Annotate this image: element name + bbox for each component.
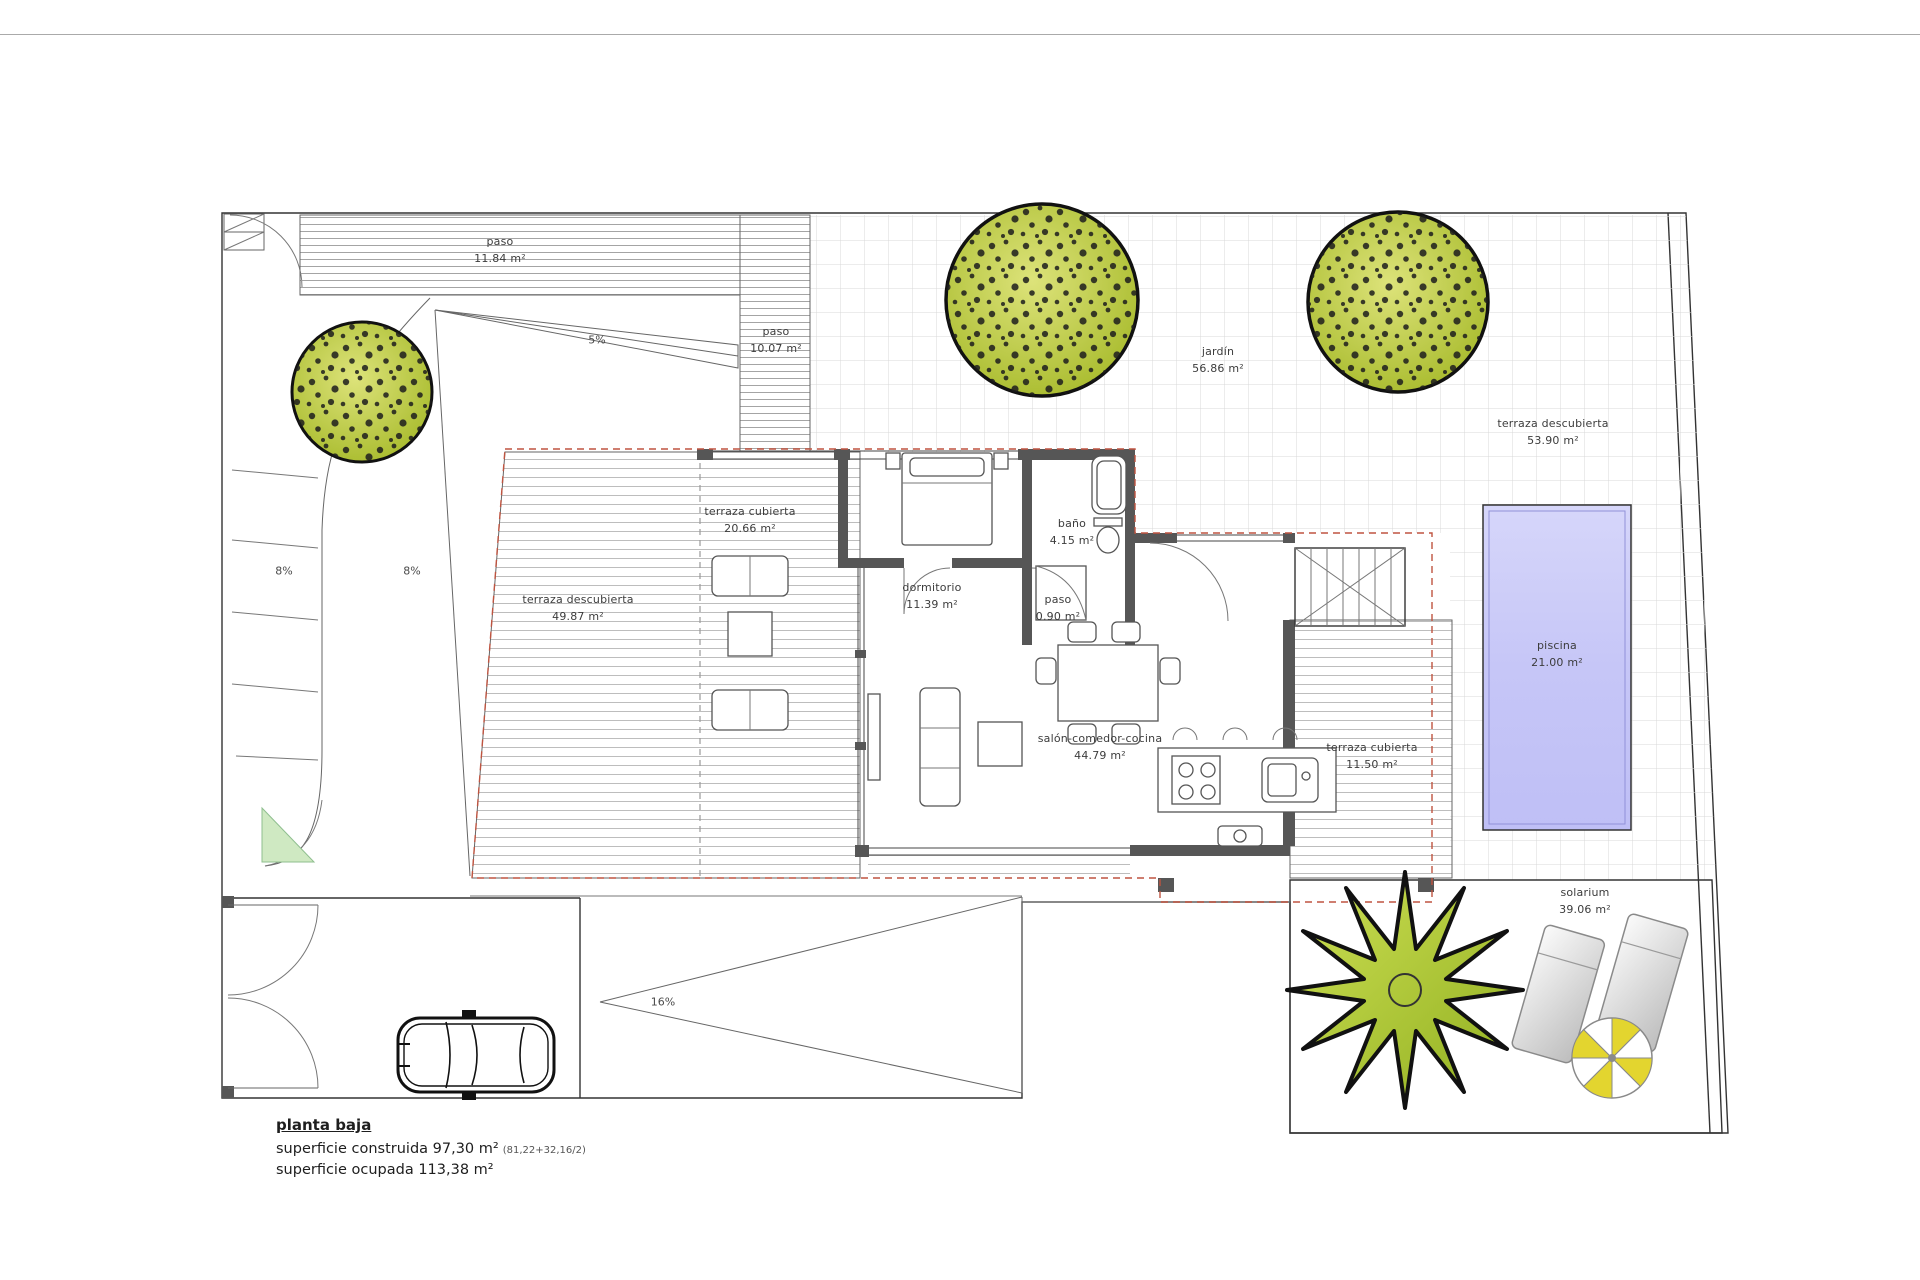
plan-title: planta baja xyxy=(276,1116,586,1134)
room-label-piscina: piscina21.00 m² xyxy=(1531,637,1583,671)
room-label-terraza-cubierta-oeste: terraza cubierta20.66 m² xyxy=(704,503,795,537)
room-label-dormitorio: dormitorio11.39 m² xyxy=(902,579,961,613)
room-label-terraza-descubierta-oeste: terraza descubierta49.87 m² xyxy=(522,591,633,625)
built-area-note: (81,22+32,16/2) xyxy=(503,1145,586,1156)
room-label-bano: baño4.15 m² xyxy=(1050,515,1095,549)
slope-label-8a: 8% xyxy=(275,565,292,578)
occupied-area-row: superficie ocupada 113,38 m² xyxy=(276,1162,586,1178)
room-label-solarium: solarium39.06 m² xyxy=(1559,884,1611,918)
floorplan-linework xyxy=(0,0,1920,1280)
garage-doors xyxy=(222,896,318,1098)
stairs xyxy=(1295,548,1405,626)
room-label-jardin: jardín56.86 m² xyxy=(1192,343,1244,377)
grass-patch xyxy=(262,808,314,862)
palm-icon xyxy=(1287,872,1523,1108)
room-label-terraza-descubierta-este: terraza descubierta53.90 m² xyxy=(1497,415,1608,449)
room-label-salon-comedor-cocina: salón-comedor-cocina44.79 m² xyxy=(1038,730,1163,764)
tree-icon xyxy=(1308,212,1488,392)
slope-label-8b: 8% xyxy=(403,565,420,578)
built-area-row: superficie construida 97,30 m²(81,22+32,… xyxy=(276,1141,586,1157)
built-area-value: superficie construida 97,30 m² xyxy=(276,1141,499,1157)
room-label-paso-strip: paso10.07 m² xyxy=(750,323,802,357)
parasol-icon xyxy=(1572,1018,1652,1098)
occupied-area-value: superficie ocupada 113,38 m² xyxy=(276,1162,494,1178)
slope-label-5: 5% xyxy=(588,334,605,347)
floor-plan-page: paso11.84 m² paso10.07 m² jardín56.86 m²… xyxy=(0,0,1920,1280)
tree-icon xyxy=(292,322,432,462)
car-icon xyxy=(398,1010,554,1100)
slope-label-16: 16% xyxy=(651,996,675,1009)
room-label-paso-walkway: paso11.84 m² xyxy=(474,233,526,267)
room-label-terraza-cubierta-este: terraza cubierta11.50 m² xyxy=(1326,739,1417,773)
room-label-paso-interior: paso0.90 m² xyxy=(1036,591,1081,625)
tree-icon xyxy=(946,204,1138,396)
title-block: planta baja superficie construida 97,30 … xyxy=(276,1116,586,1183)
